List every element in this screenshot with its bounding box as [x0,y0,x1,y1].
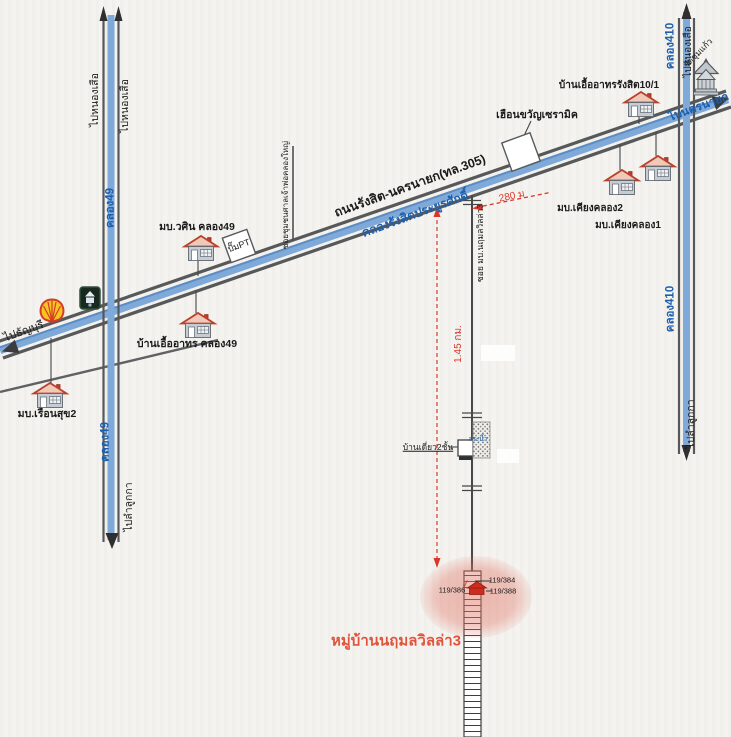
house-icon-ruensuk2 [34,383,67,408]
target-check-icon: ✓ [460,579,471,592]
two-storey-house-label: บ้านเดี่ยว2ชั้น [403,443,453,452]
canal410-name-label: คลอง410 [665,23,677,69]
canal49-arrow-down [106,533,119,549]
canal410-name-lower-label: คลอง410 [665,286,677,332]
house-icon-uaarthorn-rangsit [625,92,658,117]
scanned-direction-map: ถนนรังสิต-นครนายก(ทล.305) คลองรังสิตประย… [0,0,731,737]
canal410-to-lamlukka-label: ไปลำลูกกา [686,399,697,448]
uaarthorn-rangsit-label: บ้านเอื้ออาทรรังสิต10/1 [559,81,659,91]
ceramic-shop-label: เฮือนขวัญเซรามิค [496,110,578,121]
measure-145km-line [434,207,441,568]
wasin-label: มบ.วศิน คลอง49 [159,222,235,233]
canal49-name-label: คลอง49 [105,188,117,228]
soi-village-label: ซอย มบ.นฤมลวิลล่า3 [476,204,485,282]
canal49-arrow-up-left [100,6,108,21]
address-119-388-label: 119/388 [490,587,517,595]
canal49-arrow-up-right [115,6,123,21]
canal49-to-nongsuea-right-label: ไปหนองเสือ [120,79,131,133]
soi-shrine-label: ซอยชุมชนศาลเจ้าพ่อคลองใหญ่ [282,141,290,249]
canal49-name-lower-label: คลอง49 [100,422,112,462]
house-icon-uaarthorn-k49 [182,313,215,338]
whiteout-patch [481,345,515,361]
distance-145km-label: 1.45 กม. [454,325,464,363]
canal49-to-nongsuea-left-label: ไปหนองเสือ [90,73,101,127]
ruensuk2-label: มบ.เรือนสุข2 [18,409,77,420]
house-icon-wasin [185,236,218,261]
kiang-khlong1-label: มบ.เคียงคลอง1 [595,221,661,231]
pond-label: สระน้ำ [468,437,487,444]
address-119-384-label: 119/384 [489,576,516,584]
whiteout-patch [497,449,519,463]
house-icon-kiang-khlong2 [606,170,639,195]
house-icon-kiang-khlong1 [642,156,675,181]
canal49-to-lamlukka-label: ไปลำลูกกา [124,482,135,531]
shell-logo-icon [41,300,64,323]
kiang-khlong2-label: มบ.เคียงคลอง2 [557,204,623,214]
uaarthorn-k49-label: บ้านเอื้ออาทร คลอง49 [137,339,237,350]
village-highlight-ellipse [420,556,532,638]
map-graphics [0,0,731,737]
village-title: หมู่บ้านนฤมลวิลล่า3 [331,634,461,649]
canal410-arrow-up [682,3,692,19]
station-logo-icon [80,287,100,309]
temple-icon [694,58,719,95]
